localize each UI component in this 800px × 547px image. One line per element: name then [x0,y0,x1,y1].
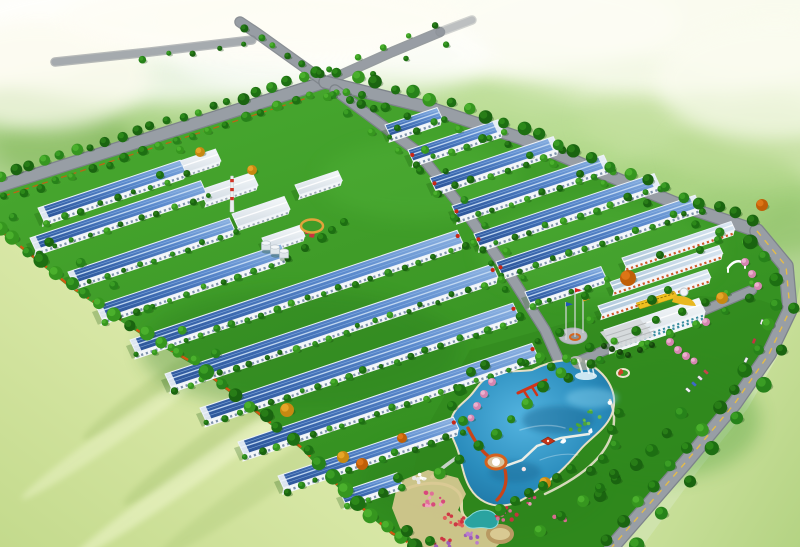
tree-highlight [151,259,154,262]
tree-highlight [298,482,302,486]
tree-highlight [722,308,726,312]
tree-highlight [190,199,194,203]
tree-highlight [359,92,363,96]
tree-highlight [691,358,695,362]
tree-highlight [535,339,538,342]
tree-highlight [184,292,188,296]
tree-highlight [304,446,310,452]
tree-highlight [138,262,141,265]
tree-highlight [206,193,209,196]
tree-highlight [338,452,345,459]
industrial-park-aerial-rendering [0,0,800,547]
tree-highlight [489,208,492,211]
tree-highlight [665,220,668,223]
tree-highlight [615,409,621,415]
tree-highlight [305,295,308,298]
tree-highlight [576,178,580,182]
tree-highlight [122,268,125,271]
tree-highlight [77,209,81,213]
tree-highlight [763,319,770,326]
tree-highlight [433,191,437,195]
tree-highlight [144,305,149,310]
tree-highlight [245,402,251,408]
tree-highlight [6,231,14,239]
tree-highlight [569,289,572,292]
tree-highlight [214,325,218,329]
tree-highlight [685,476,692,483]
flowerbed-dot [454,522,458,526]
tree-highlight [621,271,630,280]
storage-tanks-top [262,241,271,245]
tree-highlight [577,213,581,217]
tree-highlight [438,389,441,392]
tree-highlight [550,160,555,165]
tree-highlight [605,162,611,168]
park-people-dot [561,440,565,444]
gable-red-accent [432,181,436,185]
tree-highlight [649,481,656,488]
tree-highlight [467,368,473,374]
tree-highlight [533,262,537,266]
tree-highlight [518,359,522,363]
tree-highlight [404,113,408,117]
tree-highlight [242,454,245,457]
flowerbed-dot [552,515,556,519]
lotus-patches-dot [587,410,590,413]
tree-highlight [534,129,541,136]
tree-highlight [451,214,455,218]
tree-highlight [228,321,232,325]
gable-red-accent [454,209,458,213]
tree-highlight [394,125,398,129]
tree-highlight [120,153,125,158]
tree-highlight [133,126,139,132]
flowerbed-dot [439,497,441,499]
tree-highlight [505,141,509,145]
flowerbed-dot [496,517,500,521]
tree-highlight [566,250,570,254]
tree-highlight [596,484,602,490]
tree-highlight [443,42,446,45]
flowerbed-dot [424,477,426,479]
tree-highlight [626,169,633,176]
tree-highlight [108,308,116,316]
tree-highlight [68,173,72,177]
tree-highlight [449,149,453,153]
tree-highlight [615,236,618,239]
gable-red-accent [530,347,534,351]
pavilion-finial [547,440,549,442]
tree-highlight [369,76,377,84]
tree-highlight [67,278,74,285]
tree-highlight [617,349,620,352]
tree-highlight [413,128,417,132]
chimney-stripe [230,188,234,191]
tree-highlight [156,337,162,343]
tree-highlight [418,302,421,305]
tree-highlight [347,97,351,101]
tree-highlight [131,190,134,193]
gable-red-accent [511,307,515,311]
tree-highlight [52,177,56,181]
tree-highlight [601,343,604,346]
tree-highlight [557,512,563,518]
tree-highlight [536,353,542,359]
tree-highlight [72,144,78,150]
tree-highlight [607,202,611,206]
tree-highlight [196,148,202,154]
tree-highlight [167,298,170,301]
tree-highlight [457,335,461,339]
flowerbed-dot [501,518,505,522]
tree-highlight [368,129,372,133]
tree-highlight [696,424,703,431]
tree-highlight [293,346,297,350]
tree-highlight [665,287,669,291]
tree-highlight [339,483,348,492]
flowerbed-dot [441,499,445,503]
tree-highlight [630,538,639,547]
tree-highlight [94,298,100,304]
tree-highlight [481,391,485,395]
flowerbed-dot [460,520,464,524]
tree-highlight [717,293,724,300]
tree-highlight [346,373,350,377]
tree-highlight [293,96,298,101]
waterfall-foam [575,372,597,380]
flowerbed-dot [440,537,444,541]
tree-highlight [62,213,66,217]
tree-highlight [609,346,612,349]
tree-highlight [461,197,465,201]
tree-highlight [274,306,278,310]
tree-highlight [480,247,484,251]
tree-highlight [110,281,115,286]
tree-highlight [23,248,29,254]
storage-tanks-top [271,245,280,249]
tree-highlight [165,180,168,183]
tree-highlight [391,449,395,453]
tree-highlight [188,383,192,387]
tree-highlight [489,261,492,264]
tree-highlight [608,426,614,432]
tree-highlight [582,246,586,250]
tree-highlight [324,93,329,98]
tree-highlight [455,126,459,130]
flowerbed-dot [417,481,421,485]
tree-highlight [473,333,476,336]
lotus-patches-dot [583,419,586,422]
tree-highlight [632,227,636,231]
flowerbed-dot [428,496,431,499]
tree-highlight [55,151,60,156]
tree-highlight [172,204,176,208]
tree-highlight [394,474,400,480]
tree-highlight [173,137,177,141]
tree-highlight [500,323,504,327]
tree-highlight [455,385,462,392]
fountain-center [492,458,500,466]
tree-highlight [431,119,435,123]
tree-highlight [357,459,364,466]
tree-highlight [88,233,91,236]
tree-highlight [524,162,528,166]
tree-highlight [465,287,469,291]
tree-highlight [355,54,359,58]
flowerbed-dot [508,509,512,513]
flowerbed-dot [515,513,519,517]
tree-highlight [221,280,224,283]
gable-red-accent [498,265,502,269]
tree-highlight [242,112,248,118]
tree-highlight [742,259,746,263]
tree-highlight [406,33,409,36]
tree-highlight [104,228,108,232]
tree-highlight [694,198,701,205]
tree-highlight [716,228,721,233]
tree-highlight [519,122,527,130]
tree-highlight [730,385,736,391]
tree-highlight [422,146,427,151]
tree-highlight [332,68,337,73]
tree-highlight [299,61,303,65]
tree-highlight [373,318,376,321]
tree-highlight [539,482,545,488]
tree-highlight [426,537,432,543]
tree-highlight [492,429,498,435]
tree-highlight [521,276,524,279]
tree-highlight [656,508,663,515]
tree-highlight [313,478,316,481]
tree-highlight [557,185,561,189]
tree-highlight [89,165,94,170]
tree-highlight [601,535,607,541]
tree-highlight [568,145,575,152]
tree-highlight [625,352,628,355]
tree-highlight [198,333,201,336]
tree-highlight [679,308,684,313]
tree-highlight [449,292,452,295]
tree-highlight [525,489,531,495]
tree-highlight [618,516,625,523]
tree-highlight [452,182,456,186]
tree-highlight [385,269,389,273]
tree-highlight [563,355,568,360]
tree-highlight [542,222,546,226]
tree-highlight [190,134,194,138]
gable-red-accent [491,268,495,272]
tree-highlight [455,455,460,460]
tree-highlight [754,345,760,351]
tree-highlight [449,248,452,251]
tree-highlight [408,353,412,357]
tree-highlight [368,276,371,279]
tree-highlight [20,189,25,194]
tree-highlight [474,441,480,447]
tree-highlight [168,344,172,348]
tree-highlight [313,341,316,344]
tree-highlight [180,114,185,119]
tree-highlight [730,207,736,213]
tree-highlight [163,117,167,121]
tree-highlight [484,327,488,331]
tree-highlight [731,412,738,419]
tree-highlight [675,347,679,351]
tree-highlight [217,379,223,385]
tree-highlight [639,341,644,346]
tree-highlight [359,367,363,371]
tree-highlight [288,433,295,440]
tree-highlight [511,497,517,503]
tree-highlight [527,152,531,156]
tree-highlight [382,521,389,528]
tree-highlight [771,300,778,307]
tree-highlight [87,279,90,282]
tree-highlight [755,283,759,287]
tree-highlight [11,164,17,170]
tree-highlight [344,330,348,334]
tree-highlight [402,265,406,269]
tree-highlight [536,299,540,303]
tree-highlight [667,339,671,343]
tree-highlight [139,215,143,219]
tree-highlight [448,402,454,408]
tree-highlight [265,355,268,358]
tree-highlight [661,183,666,188]
flowerbed-dot [412,476,416,480]
tree-highlight [601,181,605,185]
tree-highlight [481,361,487,367]
tree-highlight [278,350,281,353]
tree-highlight [404,401,408,405]
tree-highlight [284,489,288,493]
tree-highlight [524,196,527,199]
tree-highlight [218,46,221,49]
tree-highlight [239,94,246,101]
tree-highlight [438,343,442,347]
tree-highlight [258,313,262,317]
tree-highlight [379,489,385,495]
tree-highlight [428,440,432,444]
tree-highlight [269,263,272,266]
tree-highlight [242,42,245,45]
tree-highlight [395,148,399,152]
tree-highlight [40,155,46,161]
flowerbed-dot [425,504,429,508]
gable-red-accent [476,237,480,241]
tree-highlight [507,368,510,371]
tree-highlight [125,321,131,327]
lotus-patches-dot [579,425,582,428]
tree-highlight [482,223,486,227]
tree-highlight [233,365,237,369]
tree-highlight [643,175,649,181]
tree-highlight [178,326,183,331]
tree-highlight [652,316,656,320]
tree-highlight [407,309,410,312]
tree-highlight [714,401,722,409]
tree-highlight [24,161,30,167]
tree-highlight [190,51,193,54]
tree-highlight [139,56,143,60]
tree-highlight [45,238,50,243]
tree-highlight [261,409,269,417]
tree-highlight [759,252,765,258]
tree-highlight [540,155,544,159]
tree-highlight [517,269,520,272]
scene-canvas [0,0,800,547]
tree-highlight [604,276,607,279]
flowerbed-dot [443,516,447,520]
tree-highlight [643,190,646,193]
tree-highlight [554,140,560,146]
tree-highlight [321,292,324,295]
tree-highlight [611,441,617,447]
lotus-patches-dot [578,428,582,432]
tree-highlight [744,235,752,243]
tree-highlight [230,389,238,397]
tree-highlight [339,424,342,427]
chimney-stripe [230,197,234,200]
tree-highlight [443,169,446,172]
tree-highlight [248,166,254,172]
tree-highlight [379,456,383,460]
tree-highlight [191,356,197,362]
tree-highlight [447,98,452,103]
tree-highlight [387,312,391,316]
tree-highlight [499,118,505,124]
tree-highlight [646,445,653,452]
tree-highlight [268,399,272,403]
tree-highlight [146,122,151,127]
tree-highlight [560,218,564,222]
tree-highlight [746,294,751,299]
admin-rotunda [680,288,688,296]
tree-highlight [388,135,391,138]
tree-highlight [703,319,707,323]
tree-highlight [366,498,369,501]
tree-highlight [326,336,330,340]
tree-highlight [270,43,273,46]
tree-highlight [715,237,719,241]
tree-highlight [682,211,685,214]
tree-highlight [464,144,468,148]
tree-highlight [318,234,324,240]
tree-highlight [346,467,350,471]
tree-highlight [392,86,397,91]
tree-highlight [508,416,512,420]
tree-highlight [200,365,209,374]
tree-highlight [79,288,85,294]
tree-highlight [471,240,475,244]
tree-highlight [251,268,255,272]
tree-highlight [757,200,764,207]
tree-highlight [267,83,273,89]
tree-highlight [407,86,414,93]
tree-highlight [404,56,407,59]
tree-highlight [632,327,637,332]
tree-highlight [502,286,506,290]
tree-highlight [260,448,264,452]
tree-highlight [495,505,502,512]
tree-highlight [134,352,137,355]
tree-highlight [222,416,226,420]
tree-highlight [170,252,173,255]
tree-highlight [205,128,209,132]
tree-highlight [548,363,553,368]
flowerbed-dot [475,541,479,545]
tree-highlight [204,420,207,423]
